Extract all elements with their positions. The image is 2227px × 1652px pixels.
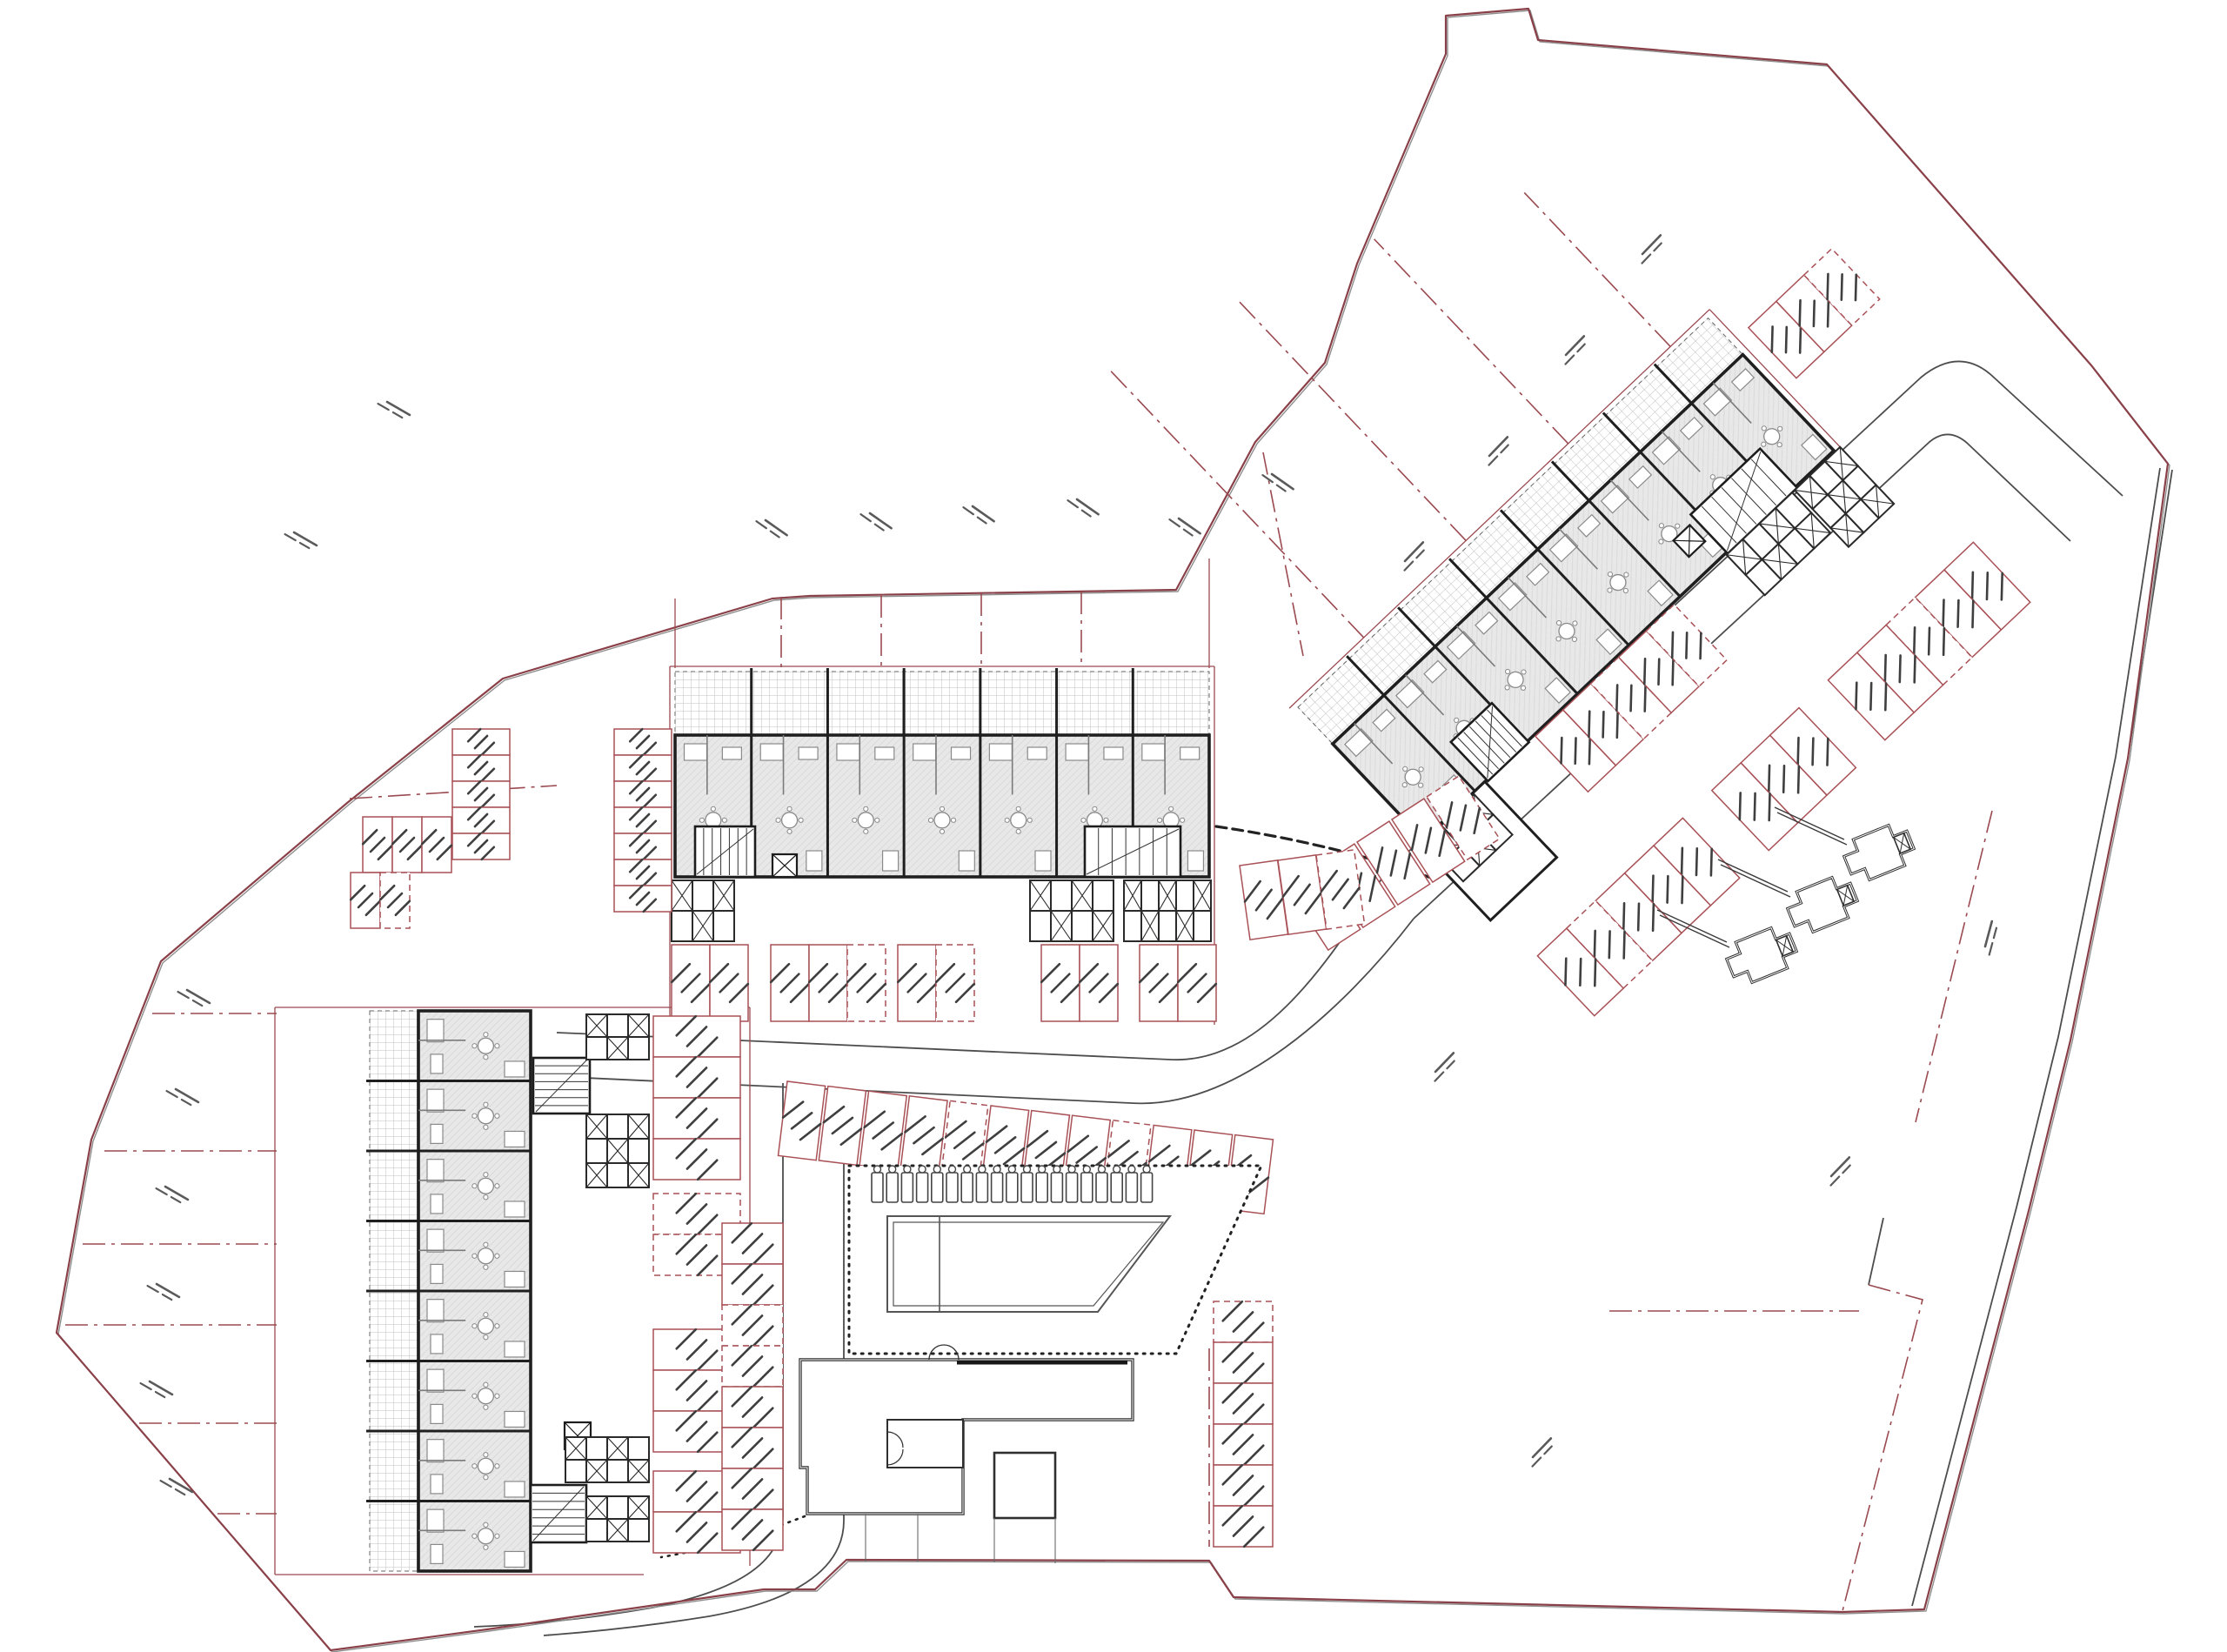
dining-table-symbol — [858, 813, 873, 828]
chair-symbol — [1180, 818, 1185, 822]
plot-label-illegible — [157, 1183, 188, 1205]
chair-symbol — [472, 1254, 477, 1258]
chair-symbol — [1169, 806, 1174, 811]
service-building-outline — [800, 1360, 1133, 1514]
bathroom-symbol — [883, 851, 899, 871]
parking-stall — [452, 781, 510, 807]
chair-symbol — [472, 1184, 477, 1188]
sofa-symbol — [431, 1475, 443, 1494]
chair-symbol — [472, 1464, 477, 1468]
bed-symbol — [427, 1440, 444, 1462]
parking-stall — [1214, 1342, 1273, 1383]
sofa-symbol — [875, 747, 894, 759]
parking-stall — [722, 1264, 783, 1305]
parking-stall — [1214, 1506, 1273, 1547]
parking-stall — [452, 807, 510, 833]
parking-stall — [653, 1057, 740, 1098]
parking-stall — [614, 755, 672, 781]
parking-stall — [1214, 1301, 1273, 1342]
plot-label-illegible — [1983, 921, 1998, 955]
chair-symbol — [940, 806, 944, 811]
chair-symbol — [472, 1324, 477, 1328]
chair-symbol — [495, 1464, 499, 1468]
bed-symbol — [760, 744, 783, 760]
parking-stall — [614, 833, 672, 859]
storage-room-cluster — [1124, 880, 1211, 941]
utility-kiosk — [1722, 922, 1801, 988]
stair-core — [695, 826, 755, 877]
plot-label-illegible — [1826, 1157, 1853, 1185]
parking-stall — [422, 817, 451, 873]
chair-symbol — [484, 1125, 488, 1129]
parking-stall — [722, 1468, 783, 1509]
parking-stall — [771, 945, 809, 1021]
parking-stall — [363, 817, 392, 873]
annex-room — [994, 1453, 1055, 1518]
utility-kiosk — [1839, 819, 1918, 886]
bed-symbol — [427, 1020, 444, 1042]
parking-stall — [1214, 1465, 1273, 1506]
parking-stall — [722, 1305, 783, 1346]
chair-symbol — [864, 806, 868, 811]
parking-stall — [614, 729, 672, 755]
storage-room-cluster — [672, 880, 734, 941]
dining-table-symbol — [934, 813, 950, 828]
bathroom-symbol — [505, 1061, 525, 1077]
sofa-symbol — [722, 747, 741, 759]
plot-label-illegible — [1528, 1438, 1555, 1466]
road-edge — [1869, 1218, 1883, 1285]
chair-symbol — [787, 829, 792, 833]
chair-symbol — [711, 806, 715, 811]
bed-symbol — [427, 1229, 444, 1252]
chair-symbol — [495, 1184, 499, 1188]
sofa-symbol — [799, 747, 818, 759]
chair-symbol — [951, 818, 955, 822]
chair-symbol — [484, 1453, 488, 1457]
parking-stall — [1041, 945, 1080, 1021]
parking-stall — [452, 729, 510, 755]
storage-room-cluster — [586, 1014, 649, 1060]
chair-symbol — [1027, 818, 1032, 822]
chair-symbol — [853, 818, 857, 822]
parking-stall — [653, 1139, 740, 1180]
parcel-division-line — [1374, 239, 1568, 444]
plot-label-illegible — [167, 1086, 198, 1107]
stair-core — [531, 1485, 586, 1542]
chair-symbol — [799, 818, 803, 822]
bathroom-symbol — [505, 1481, 525, 1497]
sofa-symbol — [431, 1264, 443, 1283]
plot-label-illegible — [1430, 1053, 1457, 1080]
parking-stall — [722, 1509, 783, 1550]
parcel-division-line — [1916, 811, 1992, 1122]
chair-symbol — [472, 1114, 477, 1118]
chair-symbol — [875, 818, 879, 822]
chair-symbol — [1093, 806, 1097, 811]
parking-stall — [1080, 945, 1118, 1021]
chair-symbol — [495, 1324, 499, 1328]
bed-symbol — [837, 744, 859, 760]
plot-label-illegible — [1561, 336, 1588, 364]
terrace-band — [675, 672, 1209, 735]
plot-label-illegible — [178, 987, 210, 1008]
chair-symbol — [484, 1335, 488, 1340]
parcel-division-line — [1110, 370, 1364, 638]
dining-table-symbol — [782, 813, 798, 828]
building-apartment-block-middle — [672, 668, 1216, 1021]
bed-symbol — [685, 744, 707, 760]
parking-stall — [351, 873, 380, 928]
parking-stall — [452, 755, 510, 781]
parking-stall — [722, 1387, 783, 1428]
chair-symbol — [1016, 829, 1020, 833]
chair-symbol — [495, 1394, 499, 1398]
plot-label-illegible — [963, 502, 993, 526]
building-apartment-block-west — [366, 1011, 740, 1571]
parking-stall — [779, 1081, 826, 1160]
dining-table-symbol — [478, 1108, 493, 1124]
pool-area — [849, 1166, 1261, 1354]
plot-label-illegible — [141, 1378, 172, 1400]
storage-room-cluster — [586, 1114, 649, 1187]
plot-label-illegible — [1484, 437, 1511, 465]
chair-symbol — [1158, 818, 1162, 822]
dining-table-symbol — [1011, 813, 1027, 828]
chair-symbol — [1005, 818, 1009, 822]
bathroom-symbol — [959, 851, 974, 871]
chair-symbol — [787, 806, 792, 811]
dining-table-symbol — [478, 1318, 493, 1334]
parking-stall — [614, 781, 672, 807]
chair-symbol — [1104, 818, 1108, 822]
plot-label-illegible — [860, 509, 891, 533]
parking-stall — [710, 945, 748, 1021]
parking-stall — [847, 945, 886, 1021]
bed-symbol — [913, 744, 936, 760]
parking-stall — [722, 1346, 783, 1387]
bed-symbol — [1066, 744, 1088, 760]
parking-stall — [1178, 945, 1216, 1021]
chair-symbol — [484, 1475, 488, 1480]
chair-symbol — [484, 1545, 488, 1549]
parking-stall — [614, 886, 672, 912]
parking-stall — [452, 833, 510, 859]
dining-table-symbol — [478, 1248, 493, 1264]
plot-label-illegible — [148, 1281, 179, 1302]
bed-symbol — [427, 1160, 444, 1182]
dining-table-symbol — [478, 1038, 493, 1053]
dining-table-symbol — [478, 1458, 493, 1474]
bathroom-symbol — [505, 1551, 525, 1567]
bathroom-symbol — [806, 851, 822, 871]
parking-stall — [936, 945, 974, 1021]
chair-symbol — [699, 818, 704, 822]
chair-symbol — [1081, 818, 1086, 822]
parcel-division-line — [1236, 298, 1466, 541]
stair-core — [533, 1058, 590, 1114]
bathroom-symbol — [1035, 851, 1051, 871]
chair-symbol — [722, 818, 726, 822]
storage-room-cluster — [1030, 880, 1113, 941]
service-building — [800, 1345, 1133, 1563]
chair-symbol — [1016, 806, 1020, 811]
plot-label-illegible — [1400, 542, 1427, 570]
parking-stall — [898, 945, 936, 1021]
parking-stall — [722, 1428, 783, 1468]
bathroom-symbol — [505, 1411, 525, 1427]
sofa-symbol — [431, 1544, 443, 1563]
parcel-lines — [65, 452, 1992, 1611]
site-plan-svg — [0, 0, 2227, 1652]
chair-symbol — [472, 1394, 477, 1398]
sofa-symbol — [431, 1124, 443, 1143]
parking-stall — [809, 945, 847, 1021]
sofa-symbol — [431, 1194, 443, 1214]
bathroom-symbol — [505, 1341, 525, 1357]
bed-symbol — [989, 744, 1012, 760]
chair-symbol — [484, 1055, 488, 1060]
bathroom-symbol — [505, 1201, 525, 1217]
parking-stall — [1214, 1424, 1273, 1465]
chair-symbol — [495, 1534, 499, 1538]
parking-stall — [653, 1098, 740, 1139]
bed-symbol — [427, 1509, 444, 1532]
chair-symbol — [484, 1173, 488, 1177]
sofa-symbol — [431, 1334, 443, 1354]
parcel-division-line — [1842, 1285, 1923, 1611]
chair-symbol — [864, 829, 868, 833]
bathroom-symbol — [505, 1271, 525, 1287]
sofa-symbol — [952, 747, 971, 759]
parking-stall — [722, 1223, 783, 1264]
bed-symbol — [1142, 744, 1165, 760]
plot-label-illegible — [285, 529, 317, 551]
parking-stall — [1140, 945, 1178, 1021]
parking-stall — [380, 873, 410, 928]
bed-symbol — [427, 1089, 444, 1112]
sofa-symbol — [431, 1404, 443, 1423]
plot-label-illegible — [1169, 514, 1200, 538]
chair-symbol — [484, 1522, 488, 1527]
storage-room-cluster — [586, 1496, 649, 1542]
plot-label-illegible — [1637, 235, 1664, 263]
chair-symbol — [484, 1033, 488, 1037]
bathroom-symbol — [1187, 851, 1203, 871]
storage-room-cluster — [565, 1437, 649, 1482]
plot-label-illegible — [378, 398, 410, 420]
chair-symbol — [495, 1044, 499, 1048]
bed-symbol — [427, 1300, 444, 1322]
dining-table-symbol — [478, 1178, 493, 1194]
chair-symbol — [495, 1254, 499, 1258]
chair-symbol — [928, 818, 933, 822]
plot-label-illegible — [756, 516, 786, 540]
parking-stall — [653, 1016, 740, 1057]
parking-stall — [392, 817, 422, 873]
parking-stall — [614, 807, 672, 833]
parking-stall — [819, 1087, 866, 1166]
dining-table-symbol — [478, 1528, 493, 1544]
parking-stall — [1214, 1383, 1273, 1424]
chair-symbol — [484, 1102, 488, 1107]
parking-stall — [900, 1096, 947, 1175]
sofa-symbol — [1104, 747, 1123, 759]
chair-symbol — [484, 1405, 488, 1409]
stair-core — [1085, 826, 1180, 877]
parking-stall — [859, 1091, 906, 1170]
parcel-division-line — [1524, 192, 1670, 346]
plot-label-illegible — [161, 1475, 192, 1497]
parking-stall — [672, 945, 710, 1021]
sofa-symbol — [1027, 747, 1047, 759]
plot-label-illegible — [1067, 495, 1098, 519]
sofa-symbol — [1180, 747, 1200, 759]
chair-symbol — [472, 1534, 477, 1538]
bed-symbol — [427, 1369, 444, 1392]
chair-symbol — [484, 1242, 488, 1247]
sofa-symbol — [431, 1054, 443, 1073]
chair-symbol — [484, 1313, 488, 1317]
dining-table-symbol — [478, 1388, 493, 1404]
chair-symbol — [495, 1114, 499, 1118]
parking-stall — [614, 859, 672, 886]
chair-symbol — [484, 1195, 488, 1200]
utility-kiosk — [1782, 872, 1862, 938]
chair-symbol — [484, 1382, 488, 1387]
chair-symbol — [776, 818, 780, 822]
chair-symbol — [472, 1044, 477, 1048]
bathroom-symbol — [505, 1131, 525, 1147]
site-plan — [0, 0, 2227, 1652]
chair-symbol — [940, 829, 944, 833]
chair-symbol — [484, 1265, 488, 1269]
